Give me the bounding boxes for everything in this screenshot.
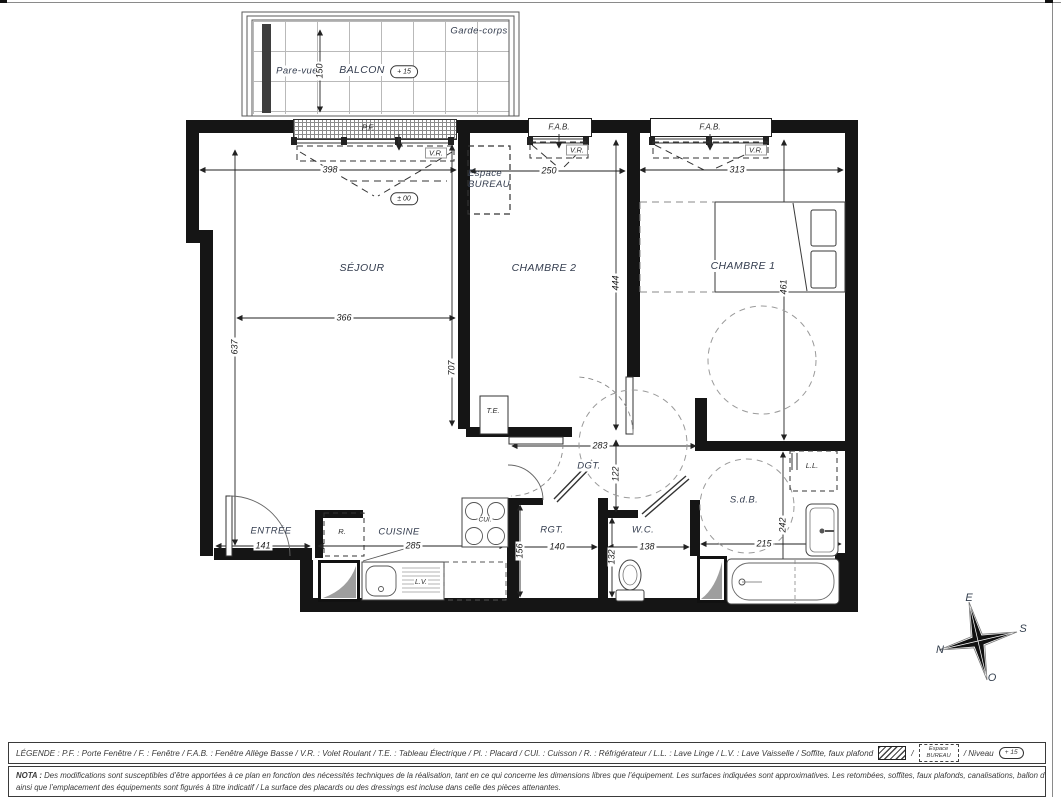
nota-label: NOTA : [16, 771, 42, 780]
dishwasher-label: L.V. [414, 579, 428, 587]
dim-sejour-h: 637 [231, 337, 240, 356]
legend-niveau-value: + 15 [999, 747, 1024, 759]
room-chambre1-label: CHAMBRE 1 [709, 260, 778, 272]
dim-chambre1-w: 313 [727, 166, 746, 175]
dim-sdb-h: 242 [779, 515, 788, 534]
dimension-lines [200, 30, 843, 597]
legend-bar: LÉGENDE : P.F. : Porte Fenêtre / F. : Fe… [8, 742, 1046, 764]
soffit-hatch-swatch [878, 746, 906, 760]
pare-vue-label: Pare-vue [274, 66, 320, 77]
pare-vue-screen [262, 24, 271, 113]
vr2-label: V.R. [566, 145, 588, 156]
nota-bar: NOTA : Des modifications sont susceptibl… [8, 766, 1046, 797]
balcon-label: BALCON [337, 64, 387, 76]
room-chambre2-label: CHAMBRE 2 [512, 262, 577, 274]
fridge-label: R. [337, 528, 347, 536]
casement-swings [300, 145, 766, 196]
compass-o-label: O [988, 672, 997, 684]
fab2-label: F.A.B. [699, 123, 720, 132]
dim-entree-w: 141 [253, 542, 272, 551]
dim-wc-h: 132 [608, 547, 617, 566]
nota-line1: Des modifications sont susceptibles d’êt… [44, 771, 1046, 780]
fab1-label: F.A.B. [548, 123, 569, 132]
dim-balcony-depth: 150 [316, 61, 325, 80]
dim-sejour-w2: 366 [334, 314, 353, 323]
sejour-level-marker: ± 00 [390, 192, 418, 205]
legend-espace-line1: Espace [927, 746, 951, 753]
bed-chambre1 [640, 202, 845, 292]
dim-wc-w: 138 [637, 543, 656, 552]
toilet [616, 560, 644, 601]
legend-separator: / [911, 749, 913, 758]
compass-s-label: S [1019, 623, 1026, 635]
espace-bureau-label: Espace BUREAU [468, 169, 510, 191]
dim-dgt-w: 283 [590, 442, 609, 451]
room-rgt-label: RGT. [540, 525, 563, 536]
espace-bureau-line2: BUREAU [468, 180, 510, 191]
pf-label: P.F. [362, 124, 375, 133]
washbasin [806, 504, 838, 556]
dim-rgt-w: 140 [547, 543, 566, 552]
floorplan-page: Garde-corps Pare-vue BALCON + 15 150 P.F… [0, 0, 1061, 800]
te-label: T.E. [485, 407, 500, 415]
room-cuisine-label: CUISINE [378, 527, 419, 538]
dim-chambre2-h: 444 [612, 273, 621, 292]
room-sdb-label: S.d.B. [728, 495, 760, 506]
garde-corps-label: Garde-corps [450, 26, 507, 37]
washer-label: L.L. [805, 462, 820, 470]
dim-chambre1-h: 461 [780, 277, 789, 296]
bathtub [727, 559, 839, 604]
dim-sejour-w: 398 [320, 166, 339, 175]
legend-niveau-label: / Niveau [964, 749, 994, 758]
compass-e-label: E [965, 592, 972, 604]
room-dgt-label: DGT. [575, 461, 602, 472]
compass-rose [939, 602, 1017, 680]
room-entree-label: ENTRÉE [251, 526, 292, 537]
kitchen-sink [362, 549, 506, 600]
legend-espace-bureau-swatch: Espace BUREAU [919, 744, 959, 761]
legend-text: LÉGENDE : P.F. : Porte Fenêtre / F. : Fe… [16, 749, 873, 758]
cooktop-label: CUI. [478, 516, 493, 523]
dim-cuisine-w: 285 [403, 542, 422, 551]
dim-sejour-h2: 707 [448, 358, 457, 377]
room-sejour-label: SÉJOUR [340, 262, 385, 274]
dim-sdb-w: 215 [754, 540, 773, 549]
nota-line2: ainsi que l’emplacement des équipements … [16, 783, 561, 792]
compass-n-label: N [936, 644, 944, 656]
room-wc-label: W.C. [632, 525, 654, 536]
legend-espace-line2: BUREAU [927, 753, 951, 760]
hinge-squares [291, 137, 769, 145]
dim-chambre2-w: 250 [539, 167, 558, 176]
vr3-label: V.R. [745, 145, 767, 156]
washer-zone [790, 451, 837, 491]
dim-rgt-h: 156 [516, 541, 525, 560]
vr1-label: V.R. [425, 148, 447, 159]
floorplan-linework [0, 0, 1061, 800]
balcony-level-marker: + 15 [390, 65, 418, 78]
dim-dgt-h: 122 [612, 464, 621, 483]
